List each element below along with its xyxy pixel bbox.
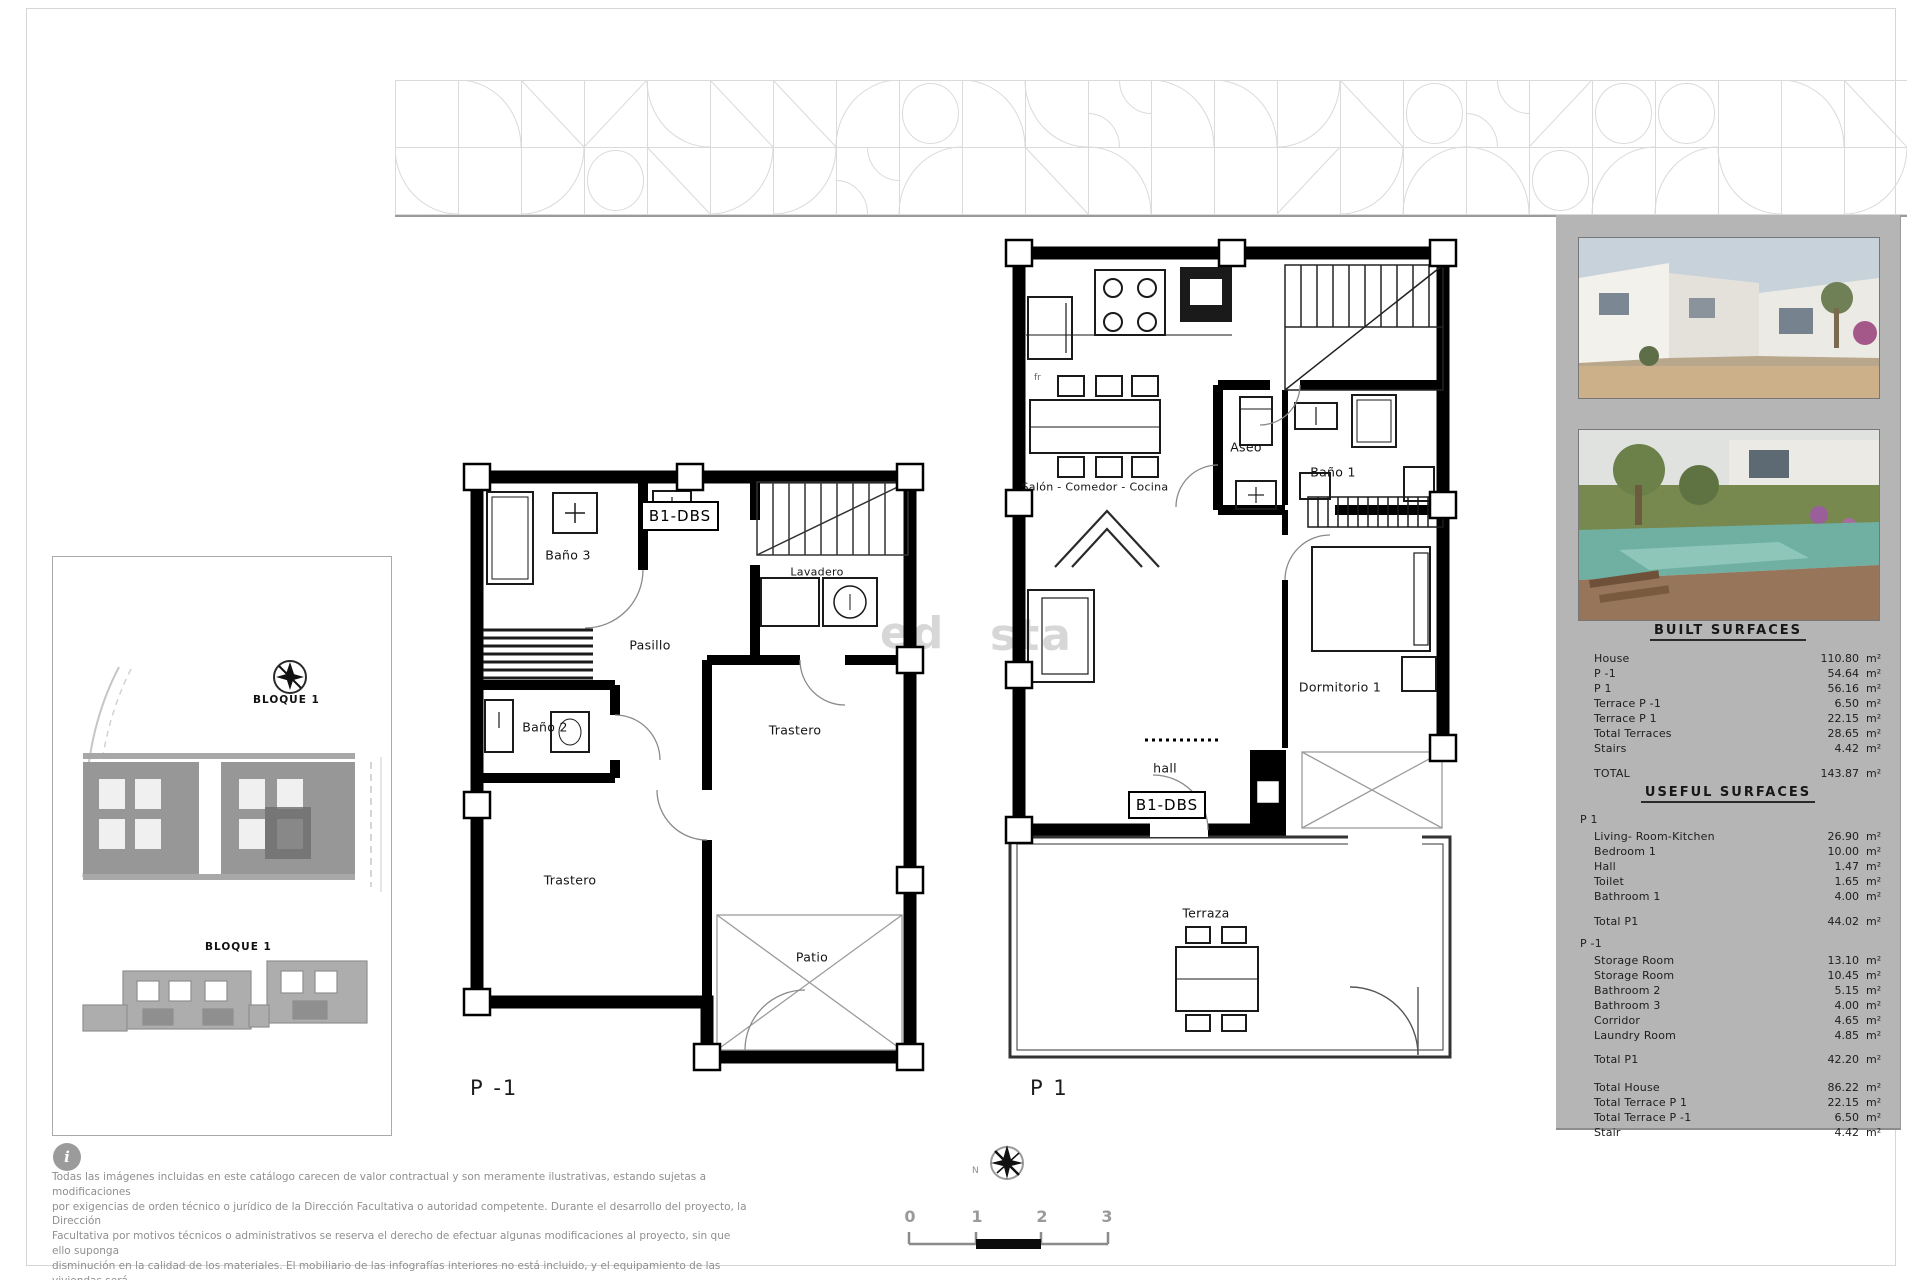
row-unit: m² <box>1859 682 1900 697</box>
site-compass-icon <box>274 661 306 693</box>
row-value: 4.00 <box>1805 890 1859 905</box>
table-row: Total House 86.22 m² <box>1556 1081 1900 1096</box>
row-unit: m² <box>1859 845 1900 860</box>
row-unit: m² <box>1859 727 1900 742</box>
room-label-patio: Patio <box>796 950 828 965</box>
table-row: Laundry Room 4.85 m² <box>1556 1029 1900 1044</box>
north-compass-icon <box>985 1141 1029 1185</box>
row-label: Toilet <box>1594 875 1805 890</box>
table-row: Terrace P 1 22.15 m² <box>1556 712 1900 727</box>
table-row: Total Terrace P 1 22.15 m² <box>1556 1096 1900 1111</box>
row-value: 86.22 <box>1805 1081 1859 1096</box>
table-row: Terrace P -1 6.50 m² <box>1556 697 1900 712</box>
row-label: Bedroom 1 <box>1594 845 1805 860</box>
row-unit: m² <box>1859 1081 1900 1096</box>
row-unit: m² <box>1859 1111 1900 1126</box>
built-surfaces-title: BUILT SURFACES <box>1556 623 1900 638</box>
table-row: House 110.80 m² <box>1556 652 1900 667</box>
row-unit: m² <box>1859 712 1900 727</box>
row-label: Living- Room-Kitchen <box>1594 830 1805 845</box>
row-unit: m² <box>1859 1126 1900 1141</box>
row-label: House <box>1594 652 1805 667</box>
row-unit: m² <box>1859 860 1900 875</box>
table-row: P 1 56.16 m² <box>1556 682 1900 697</box>
row-value: 26.90 <box>1805 830 1859 845</box>
built-surfaces-table: House 110.80 m² P -1 54.64 m² P 1 56.16 … <box>1556 652 1900 757</box>
useful-pm1-total-row: Total P1 42.20 m² <box>1556 1053 1900 1068</box>
room-label-bano1: Baño 1 <box>1310 465 1356 480</box>
table-row: P -1 54.64 m² <box>1556 667 1900 682</box>
elevation-drawing <box>83 961 367 1031</box>
row-value: 110.80 <box>1805 652 1859 667</box>
room-label-hall: hall <box>1153 761 1177 776</box>
useful-p1-heading: P 1 <box>1556 813 1900 828</box>
row-value: 28.65 <box>1805 727 1859 742</box>
row-label: Stairs <box>1594 742 1805 757</box>
floor-plan-basement: Baño 3 Pasillo Lavadero Baño 2 Trastero … <box>455 460 930 1100</box>
room-label-trastero-left: Trastero <box>544 873 597 888</box>
row-value: 22.15 <box>1805 712 1859 727</box>
row-unit: m² <box>1859 1096 1900 1111</box>
plan-title-main: P 1 <box>1030 1076 1069 1100</box>
table-row: Bathroom 1 4.00 m² <box>1556 890 1900 905</box>
row-value: 1.47 <box>1805 860 1859 875</box>
row-unit: m² <box>1859 969 1900 984</box>
surfaces-sidebar: BUILT SURFACES House 110.80 m² P -1 54.6… <box>1556 215 1901 1130</box>
room-label-lavadero: Lavadero <box>790 566 843 579</box>
row-unit: m² <box>1859 984 1900 999</box>
row-value: 10.45 <box>1805 969 1859 984</box>
unit-tag-basement: B1-DBS <box>641 501 719 531</box>
row-unit: m² <box>1859 742 1900 757</box>
row-unit: m² <box>1859 652 1900 667</box>
row-value: 4.42 <box>1805 742 1859 757</box>
row-value: 4.00 <box>1805 999 1859 1014</box>
table-row: Stairs 4.42 m² <box>1556 742 1900 757</box>
row-unit: m² <box>1859 1029 1900 1044</box>
table-row: Living- Room-Kitchen 26.90 m² <box>1556 830 1900 845</box>
table-row: Bathroom 3 4.00 m² <box>1556 999 1900 1014</box>
fridge-tag: fr <box>1034 373 1041 383</box>
table-row: Bedroom 1 10.00 m² <box>1556 845 1900 860</box>
row-label: Bathroom 1 <box>1594 890 1805 905</box>
row-value: 4.65 <box>1805 1014 1859 1029</box>
plan-title-basement: P -1 <box>470 1076 518 1100</box>
pool-render-photo <box>1578 429 1880 621</box>
room-label-terraza: Terraza <box>1182 906 1229 921</box>
row-label: Hall <box>1594 860 1805 875</box>
row-label: Corridor <box>1594 1014 1805 1029</box>
scale-label-2: 2 <box>1036 1207 1047 1226</box>
row-value: 4.42 <box>1805 1126 1859 1141</box>
room-label-pasillo: Pasillo <box>629 638 670 653</box>
block-label-top: BLOQUE 1 <box>253 694 320 706</box>
row-label: Terrace P -1 <box>1594 697 1805 712</box>
scale-bar <box>900 1228 1116 1254</box>
room-label-bano3: Baño 3 <box>545 548 591 563</box>
row-value: 10.00 <box>1805 845 1859 860</box>
row-value: 5.15 <box>1805 984 1859 999</box>
floor-plan-main: Salón - Comedor - Cocina Aseo Baño 1 Dor… <box>1000 235 1465 1070</box>
site-plan-drawing <box>53 557 391 1135</box>
table-row: Bathroom 2 5.15 m² <box>1556 984 1900 999</box>
row-label: Storage Room <box>1594 954 1805 969</box>
table-row: Storage Room 13.10 m² <box>1556 954 1900 969</box>
row-unit: m² <box>1859 697 1900 712</box>
frieze-pattern <box>395 80 1907 220</box>
table-row: Total Terraces 28.65 m² <box>1556 727 1900 742</box>
room-label-bano2: Baño 2 <box>522 720 568 735</box>
summary-table: Total House 86.22 m² Total Terrace P 1 2… <box>1556 1081 1900 1141</box>
row-unit: m² <box>1859 1014 1900 1029</box>
exterior-render-photo <box>1578 237 1880 399</box>
catalog-sheet: ed sta <box>0 0 1920 1280</box>
scale-label-0: 0 <box>904 1207 915 1226</box>
room-label-salon: Salón - Comedor - Cocina <box>1022 481 1169 494</box>
table-row: Total Terrace P -1 6.50 m² <box>1556 1111 1900 1126</box>
row-value: 13.10 <box>1805 954 1859 969</box>
row-label: Bathroom 2 <box>1594 984 1805 999</box>
disclaimer-text: Todas las imágenes incluidas en este cat… <box>52 1170 752 1280</box>
table-row: Corridor 4.65 m² <box>1556 1014 1900 1029</box>
built-total-row: TOTAL 143.87 m² <box>1556 767 1900 782</box>
info-icon: i <box>53 1143 81 1171</box>
row-label: Laundry Room <box>1594 1029 1805 1044</box>
row-label: Bathroom 3 <box>1594 999 1805 1014</box>
row-unit: m² <box>1859 890 1900 905</box>
row-label: Total Terraces <box>1594 727 1805 742</box>
north-label: N <box>972 1166 979 1176</box>
useful-surfaces-title: USEFUL SURFACES <box>1556 785 1900 800</box>
unit-tag-main: B1-DBS <box>1128 791 1206 819</box>
row-value: 22.15 <box>1805 1096 1859 1111</box>
useful-pm1-table: Storage Room 13.10 m² Storage Room 10.45… <box>1556 954 1900 1044</box>
row-label: Total House <box>1594 1081 1805 1096</box>
row-value: 54.64 <box>1805 667 1859 682</box>
table-row: Storage Room 10.45 m² <box>1556 969 1900 984</box>
row-value: 56.16 <box>1805 682 1859 697</box>
scale-label-1: 1 <box>971 1207 982 1226</box>
table-row: Hall 1.47 m² <box>1556 860 1900 875</box>
row-label: Terrace P 1 <box>1594 712 1805 727</box>
row-label: Stair <box>1594 1126 1805 1141</box>
useful-p1-total-row: Total P1 44.02 m² <box>1556 915 1900 930</box>
room-label-dormitorio1: Dormitorio 1 <box>1299 680 1381 695</box>
room-label-aseo: Aseo <box>1230 440 1262 455</box>
useful-pm1-heading: P -1 <box>1556 937 1900 952</box>
scale-label-3: 3 <box>1101 1207 1112 1226</box>
row-label: P -1 <box>1594 667 1805 682</box>
row-label: Storage Room <box>1594 969 1805 984</box>
table-row: Stair 4.42 m² <box>1556 1126 1900 1141</box>
row-unit: m² <box>1859 667 1900 682</box>
row-unit: m² <box>1859 954 1900 969</box>
row-unit: m² <box>1859 830 1900 845</box>
row-unit: m² <box>1859 999 1900 1014</box>
row-label: Total Terrace P -1 <box>1594 1111 1805 1126</box>
row-value: 4.85 <box>1805 1029 1859 1044</box>
useful-p1-table: Living- Room-Kitchen 26.90 m² Bedroom 1 … <box>1556 830 1900 905</box>
row-value: 1.65 <box>1805 875 1859 890</box>
row-value: 6.50 <box>1805 1111 1859 1126</box>
row-label: Total Terrace P 1 <box>1594 1096 1805 1111</box>
row-label: P 1 <box>1594 682 1805 697</box>
table-row: Toilet 1.65 m² <box>1556 875 1900 890</box>
row-value: 6.50 <box>1805 697 1859 712</box>
site-plan-panel: BLOQUE 1 BLOQUE 1 <box>52 556 392 1136</box>
row-unit: m² <box>1859 875 1900 890</box>
block-label-bottom: BLOQUE 1 <box>205 941 272 953</box>
room-label-trastero-right: Trastero <box>769 723 822 738</box>
